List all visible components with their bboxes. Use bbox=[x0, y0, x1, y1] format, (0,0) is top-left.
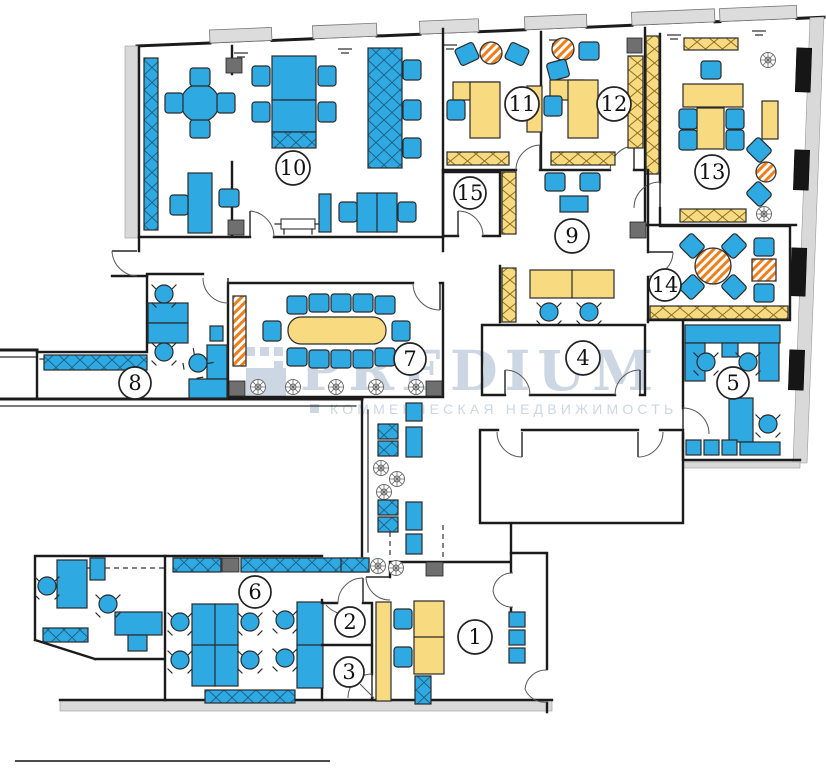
cabinet bbox=[210, 326, 223, 341]
chair bbox=[726, 130, 744, 150]
door-arc bbox=[203, 278, 228, 303]
room-4-label: 4 bbox=[576, 346, 589, 370]
cabinet bbox=[686, 440, 701, 455]
office-chair bbox=[273, 649, 297, 671]
door-arc bbox=[683, 408, 709, 434]
plant-icon bbox=[388, 560, 404, 576]
chair bbox=[544, 96, 562, 116]
column-pier bbox=[229, 381, 245, 396]
chair bbox=[331, 350, 351, 368]
stair-lobby-room bbox=[480, 430, 683, 553]
wall-shadow bbox=[683, 462, 800, 468]
round-table bbox=[181, 84, 219, 122]
seat bbox=[406, 403, 422, 421]
bottom-wall-band bbox=[60, 700, 552, 711]
chair bbox=[165, 93, 183, 113]
desk bbox=[189, 379, 227, 398]
side-table bbox=[552, 38, 574, 60]
chair bbox=[398, 202, 416, 222]
chair bbox=[339, 202, 357, 222]
room-14-badge: 14 bbox=[649, 269, 681, 301]
desk-cluster bbox=[273, 602, 323, 688]
corridor-top bbox=[112, 237, 147, 276]
chair bbox=[403, 100, 421, 120]
desk bbox=[207, 345, 227, 379]
plant-icon bbox=[370, 558, 386, 574]
chair bbox=[309, 294, 329, 312]
room-3-label: 3 bbox=[342, 660, 355, 684]
door-arc bbox=[638, 432, 663, 457]
room-13: 13 bbox=[634, 34, 796, 225]
column-pier bbox=[627, 38, 642, 53]
cabinet bbox=[704, 440, 719, 455]
plant-icon bbox=[408, 379, 424, 395]
cabinet bbox=[90, 558, 105, 580]
room-4-badge: 4 bbox=[566, 341, 600, 375]
room-6-label: 6 bbox=[248, 580, 261, 604]
chair bbox=[746, 137, 773, 164]
plant-icon bbox=[373, 460, 389, 476]
column-pier bbox=[630, 222, 646, 238]
watermark-brand: PREDIUM bbox=[300, 338, 660, 403]
chair bbox=[746, 181, 773, 208]
room-14: 14 bbox=[648, 226, 790, 320]
room-12: 12 bbox=[544, 28, 645, 225]
seat bbox=[509, 630, 525, 645]
door-arc bbox=[458, 211, 483, 236]
chair bbox=[447, 100, 465, 120]
door-arc bbox=[338, 578, 363, 603]
office-chair bbox=[35, 577, 59, 599]
cabinet bbox=[740, 442, 780, 455]
office-chair bbox=[238, 651, 262, 673]
office-chair bbox=[238, 613, 262, 635]
seat bbox=[378, 424, 398, 439]
chair bbox=[504, 42, 530, 67]
plant-icon bbox=[285, 379, 301, 395]
desk bbox=[470, 82, 500, 138]
room-11-badge: 11 bbox=[505, 87, 539, 121]
plant-icon bbox=[389, 471, 405, 487]
chair bbox=[353, 350, 373, 368]
window-band bbox=[209, 5, 796, 43]
column-pier bbox=[222, 558, 239, 572]
cabinet bbox=[43, 628, 88, 642]
chair bbox=[403, 138, 421, 158]
room-10: 10 bbox=[139, 29, 443, 237]
window bbox=[719, 5, 796, 21]
room-15-badge: 15 bbox=[454, 177, 486, 209]
chair bbox=[580, 173, 600, 191]
room-10-label: 10 bbox=[280, 156, 307, 180]
chair bbox=[263, 321, 281, 341]
seat bbox=[406, 534, 422, 554]
double-door-arc bbox=[525, 670, 547, 702]
chair bbox=[287, 296, 307, 314]
chair bbox=[375, 296, 395, 314]
column-pier bbox=[228, 220, 244, 235]
cabinet bbox=[762, 101, 778, 139]
room-2-label: 2 bbox=[343, 610, 356, 634]
room-13-badge: 13 bbox=[695, 155, 729, 189]
room-6-badge: 6 bbox=[239, 576, 271, 608]
plant-icon bbox=[328, 379, 344, 395]
chair bbox=[252, 66, 270, 86]
chair bbox=[318, 102, 336, 122]
office-chair bbox=[168, 651, 192, 673]
room-15: 15 bbox=[443, 170, 516, 251]
cabinet bbox=[341, 558, 369, 572]
office-chair bbox=[273, 611, 297, 633]
cabinet bbox=[502, 268, 516, 322]
window bbox=[419, 19, 478, 34]
room-9-label: 9 bbox=[565, 224, 578, 248]
room-7-badge: 7 bbox=[394, 343, 426, 375]
door-arc bbox=[250, 211, 274, 237]
room-9-badge: 9 bbox=[555, 219, 589, 253]
chair bbox=[679, 109, 697, 129]
room-9: 9 bbox=[500, 170, 648, 325]
chair bbox=[375, 348, 395, 366]
left-wall-band bbox=[125, 46, 138, 238]
seat bbox=[406, 502, 422, 530]
office-chair bbox=[537, 303, 561, 325]
floor-plan-page: PREDIUM КОММЕРЧЕСКАЯ НЕДВИЖИМОСТЬ bbox=[0, 0, 826, 768]
room-13-label: 13 bbox=[699, 160, 726, 184]
desk bbox=[57, 560, 87, 608]
room-1: 1 bbox=[366, 553, 547, 712]
cabinet bbox=[144, 58, 158, 230]
seat bbox=[509, 612, 525, 627]
chair bbox=[403, 60, 421, 80]
desk bbox=[188, 173, 212, 233]
door-arc bbox=[497, 432, 522, 457]
cabinet bbox=[650, 306, 788, 319]
chair bbox=[394, 609, 412, 629]
cabinet bbox=[722, 440, 737, 455]
desk bbox=[148, 323, 188, 343]
room-5-badge: 5 bbox=[717, 367, 749, 399]
seat bbox=[378, 517, 398, 532]
round-table bbox=[695, 248, 731, 284]
room-5-label: 5 bbox=[726, 371, 739, 395]
reception-cabinet bbox=[376, 602, 391, 701]
chair bbox=[331, 294, 351, 312]
desk-cluster bbox=[252, 56, 336, 148]
room-15-label: 15 bbox=[457, 181, 484, 205]
desk bbox=[148, 303, 188, 323]
room-2-badge: 2 bbox=[335, 607, 365, 637]
chair bbox=[546, 59, 570, 82]
cabinet bbox=[684, 38, 738, 50]
chair bbox=[170, 195, 188, 215]
desk bbox=[128, 635, 147, 651]
chair bbox=[190, 120, 210, 138]
meeting-table bbox=[697, 108, 724, 149]
seat bbox=[509, 648, 525, 663]
room-12-label: 12 bbox=[601, 92, 628, 116]
office-chair bbox=[577, 303, 601, 325]
desk bbox=[722, 343, 738, 357]
bench bbox=[275, 219, 321, 234]
window bbox=[209, 27, 271, 43]
cabinet bbox=[447, 152, 509, 165]
desk bbox=[115, 612, 162, 635]
window bbox=[631, 9, 714, 25]
chair bbox=[392, 321, 410, 341]
cabinet bbox=[502, 172, 516, 234]
chair bbox=[309, 350, 329, 368]
room-12-badge: 12 bbox=[597, 87, 631, 121]
column-pier bbox=[226, 58, 242, 73]
side-table bbox=[756, 162, 776, 182]
conference-table bbox=[288, 317, 386, 344]
office-chair bbox=[152, 343, 176, 365]
plant-icon bbox=[368, 379, 384, 395]
floor-plan: PREDIUM КОММЕРЧЕСКАЯ НЕДВИЖИМОСТЬ bbox=[0, 0, 826, 768]
cabinet bbox=[680, 209, 746, 222]
seat bbox=[378, 500, 398, 515]
cabinet bbox=[233, 296, 246, 366]
desk bbox=[729, 398, 753, 442]
office-chair bbox=[168, 613, 192, 635]
chair bbox=[353, 294, 373, 312]
chair bbox=[701, 61, 721, 79]
side-table bbox=[480, 42, 502, 64]
cabinet bbox=[415, 676, 431, 704]
door-arc bbox=[366, 577, 390, 600]
column-pier bbox=[426, 381, 442, 396]
side-table bbox=[752, 259, 776, 281]
room-11-label: 11 bbox=[509, 92, 536, 116]
cabinet bbox=[551, 152, 615, 165]
room-7-label: 7 bbox=[403, 347, 416, 371]
plant-icon bbox=[760, 52, 776, 68]
cabinet bbox=[319, 194, 331, 232]
chair bbox=[190, 68, 210, 86]
window bbox=[524, 14, 586, 30]
room-1-badge: 1 bbox=[458, 620, 492, 654]
door-arc bbox=[112, 251, 137, 276]
room-8: 8 bbox=[37, 274, 228, 399]
room-14-label: 14 bbox=[652, 273, 679, 297]
tall-cabinet bbox=[368, 48, 402, 168]
chair bbox=[679, 130, 697, 150]
chair bbox=[754, 284, 774, 302]
chair bbox=[318, 66, 336, 86]
chair bbox=[754, 238, 774, 256]
door-arc bbox=[516, 145, 540, 170]
plant-icon bbox=[376, 484, 392, 500]
cabinet bbox=[205, 690, 295, 703]
chair bbox=[287, 348, 307, 366]
desk bbox=[759, 343, 779, 381]
room-3: 3 bbox=[334, 657, 374, 700]
room-10-badge: 10 bbox=[276, 151, 310, 185]
cabinet bbox=[173, 558, 221, 572]
room-3-badge: 3 bbox=[334, 657, 364, 687]
window bbox=[312, 23, 376, 39]
chair bbox=[219, 189, 239, 207]
chair bbox=[394, 647, 412, 667]
seat bbox=[406, 427, 422, 457]
room-1-label: 1 bbox=[468, 625, 481, 649]
plant-icon bbox=[756, 206, 772, 222]
chair bbox=[454, 42, 480, 67]
waiting-corridor bbox=[373, 403, 443, 558]
door-arc bbox=[413, 283, 440, 310]
room-bottom-left bbox=[35, 556, 165, 700]
chair bbox=[217, 93, 235, 113]
watermark-tagline: КОММЕРЧЕСКАЯ НЕДВИЖИМОСТЬ bbox=[330, 401, 677, 417]
chair bbox=[579, 42, 599, 60]
chair bbox=[545, 173, 565, 191]
cabinet bbox=[646, 36, 659, 174]
room-5: 5 bbox=[683, 322, 800, 468]
chair bbox=[726, 109, 744, 129]
desk bbox=[685, 325, 780, 343]
desk bbox=[683, 84, 743, 107]
column-pier bbox=[426, 562, 443, 576]
seat bbox=[378, 441, 398, 456]
double-door-arc bbox=[493, 573, 513, 607]
room-8-label: 8 bbox=[128, 371, 141, 395]
plant-icon bbox=[250, 379, 266, 395]
room-8-badge: 8 bbox=[119, 367, 151, 399]
desk bbox=[568, 80, 598, 138]
office-chair bbox=[756, 415, 780, 437]
chair bbox=[252, 102, 270, 122]
desk-cluster bbox=[168, 604, 262, 686]
watermark-bullet bbox=[310, 404, 319, 413]
table bbox=[560, 196, 588, 212]
